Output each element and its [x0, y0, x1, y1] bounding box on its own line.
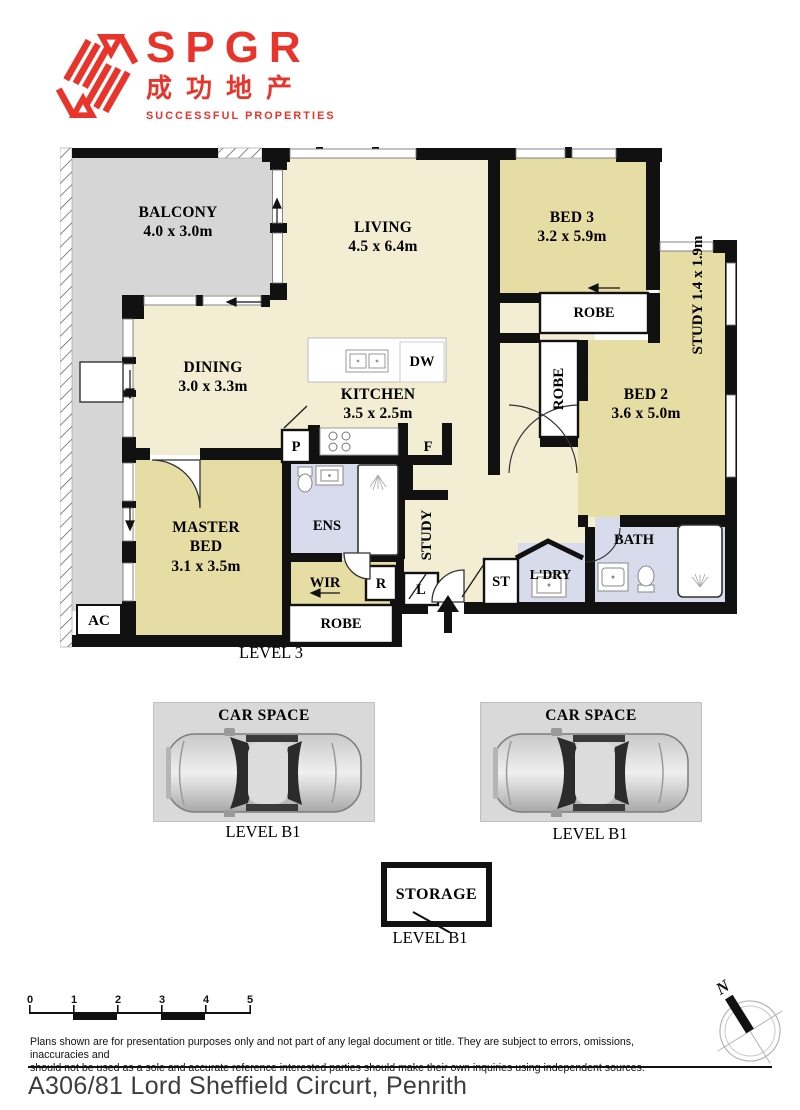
storage-label: STORAGE [396, 886, 477, 904]
label-bath: BATH [609, 533, 659, 548]
room-label-balcony: BALCONY4.0 x 3.0m [98, 203, 258, 242]
label-pantry: P [286, 440, 306, 455]
label-study-hall: STUDY [418, 510, 436, 561]
compass-icon: N [700, 975, 795, 1070]
car-space-2-label: CAR SPACE [481, 707, 701, 725]
label-laundry: L'DRY [523, 568, 578, 582]
label-fridge: F [418, 440, 438, 455]
label-st-box: ST [489, 575, 513, 590]
storage-level: LEVEL B1 [350, 928, 510, 948]
room-label-dining: DINING3.0 x 3.3m [133, 358, 293, 397]
scale-tick-2: 2 [115, 994, 121, 1006]
car-space-1-label: CAR SPACE [154, 707, 374, 725]
car-space-2: CAR SPACE [480, 702, 702, 822]
sink-icon [346, 350, 388, 372]
scale-tick-3: 3 [159, 994, 165, 1006]
floorplan-page: SPGR 成功地产 SUCCESSFUL PROPERTIES [0, 0, 800, 1110]
car-icon [491, 727, 691, 817]
property-address: A306/81 Lord Sheffield Circurt, Penrith [28, 1072, 772, 1101]
room-fill-side-terrace [72, 295, 123, 611]
label-robe-mid: ROBE [550, 368, 568, 411]
brand-text-block: SPGR 成功地产 SUCCESSFUL PROPERTIES [146, 26, 336, 122]
scale-tick-5: 5 [247, 994, 253, 1006]
label-l-box: L [411, 583, 431, 598]
floorplan-level3: BALCONY4.0 x 3.0m LIVING4.5 x 6.4m BED 3… [60, 145, 740, 665]
bath-toilet-icon [638, 566, 654, 592]
room-label-bed2: BED 23.6 x 5.0m [566, 385, 726, 424]
plan-level-label: LEVEL 3 [211, 643, 331, 663]
spgr-emblem-icon [55, 28, 139, 124]
label-robe-bed3: ROBE [564, 306, 624, 321]
footer-divider [28, 1066, 772, 1068]
scale-tick-1: 1 [71, 994, 77, 1006]
label-ens: ENS [307, 519, 347, 534]
label-r-box: R [371, 577, 391, 592]
brand-logo-icon [55, 28, 139, 129]
car-space-2-level: LEVEL B1 [480, 824, 700, 844]
compass-north-label: N [712, 976, 734, 1000]
storage-cage: STORAGE [381, 862, 492, 927]
car-space-1-level: LEVEL B1 [153, 822, 373, 842]
car-space-1: CAR SPACE [153, 702, 375, 822]
washing-machine-icon [598, 563, 628, 591]
room-label-kitchen: KITCHEN3.5 x 2.5m [298, 385, 458, 424]
scale-tick-0: 0 [27, 994, 33, 1006]
room-fill-bed2 [578, 340, 727, 517]
brand-name: SPGR [146, 26, 336, 70]
room-label-master: MASTER BED3.1 x 3.5m [164, 518, 248, 576]
room-label-living: LIVING4.5 x 6.4m [303, 218, 463, 257]
scale-bar: 0 1 2 3 4 5 [26, 992, 258, 1028]
car-icon [164, 727, 364, 817]
label-ac: AC [84, 614, 114, 629]
label-wir: WIR [305, 576, 345, 591]
room-label-bed3: BED 33.2 x 5.9m [492, 208, 652, 247]
brand-chinese-name: 成功地产 [146, 76, 336, 102]
scale-tick-4: 4 [203, 994, 210, 1006]
vanity-icon [316, 466, 343, 485]
label-robe-master: ROBE [311, 617, 371, 632]
room-label-study: STUDY 1.4 x 1.9m [689, 235, 707, 354]
toilet-icon [298, 467, 312, 492]
disclaimer-text: Plans shown are for presentation purpose… [30, 1036, 670, 1076]
label-dishwasher: DW [406, 355, 438, 370]
brand-tagline: SUCCESSFUL PROPERTIES [146, 110, 336, 122]
